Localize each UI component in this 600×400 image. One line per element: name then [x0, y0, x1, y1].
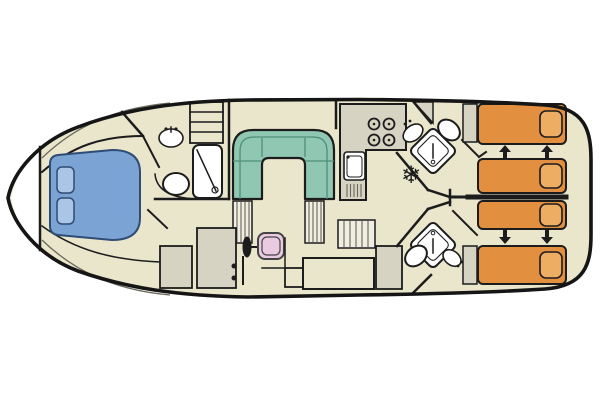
wardrobe-shelves	[190, 102, 223, 143]
step-box	[285, 268, 303, 287]
pillow	[57, 198, 74, 224]
helm-console	[197, 228, 236, 288]
steps-aft	[338, 220, 375, 248]
pillow	[540, 252, 562, 278]
fridge-icon: ❄	[401, 161, 421, 189]
pillow	[540, 111, 562, 137]
cabin-divider	[463, 246, 477, 284]
pillow	[57, 167, 74, 193]
helm-seat	[258, 233, 284, 259]
boat-floor-plan: ❄	[0, 0, 600, 400]
cabin-divider	[463, 104, 477, 142]
pillow	[540, 204, 562, 226]
cabinet	[376, 246, 402, 289]
pillow	[540, 164, 562, 188]
bench	[303, 258, 374, 289]
double-bed	[50, 150, 140, 240]
cabinet	[160, 246, 192, 288]
shower-stall-icon	[193, 145, 222, 198]
steps-starboard	[305, 201, 324, 243]
toilet-icon	[163, 173, 189, 195]
